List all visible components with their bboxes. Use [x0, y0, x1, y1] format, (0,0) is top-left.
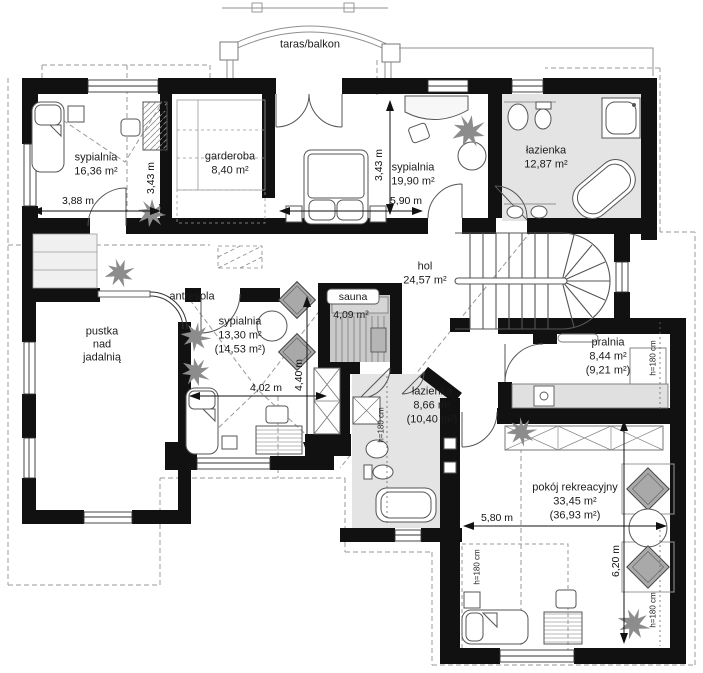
- round-table-icon: [629, 509, 667, 547]
- recreation-furniture: [462, 426, 674, 644]
- shelf-icon: [558, 334, 598, 342]
- bedroom2-furniture: [286, 96, 486, 224]
- side-table-icon: [458, 142, 486, 170]
- armchair-icon: [279, 282, 316, 319]
- door-laundry: [505, 344, 543, 382]
- door-bedroom1: [88, 188, 126, 226]
- nightstand-icon: [370, 206, 386, 222]
- sink-icon: [366, 440, 388, 458]
- door-bedroom3: [201, 294, 240, 333]
- sink-icon: [507, 206, 523, 218]
- nightstand-icon: [68, 106, 84, 122]
- bedroom3-furniture: [186, 282, 340, 454]
- chair-icon: [556, 590, 576, 608]
- wardrobe-room-shelves: [177, 100, 265, 223]
- sink-icon: [531, 206, 547, 218]
- chair-icon: [266, 406, 288, 423]
- toilet-icon: [364, 465, 372, 479]
- terrace-balcony: [220, 3, 653, 78]
- chair-icon: [121, 119, 140, 136]
- sink-icon: [508, 104, 528, 130]
- floor-plan-drawing: [0, 0, 703, 673]
- armchair-icon: [627, 546, 669, 588]
- floor-plan: taras/balkon sypialnia 16,36 m² garderob…: [0, 0, 703, 673]
- door-bedroom2: [428, 184, 462, 218]
- radiator-icon: [444, 438, 456, 449]
- mezzanine-cabinet: [33, 234, 97, 288]
- french-door-right: [309, 94, 342, 127]
- toilet-icon: [536, 102, 551, 109]
- nightstand-icon: [464, 592, 480, 608]
- armchair-icon: [279, 334, 316, 371]
- desk-icon: [544, 612, 582, 644]
- pillow-icon: [337, 200, 363, 220]
- radiator-icon: [444, 462, 456, 473]
- desk-icon: [256, 426, 302, 454]
- chair-icon: [408, 122, 430, 143]
- nightstand-icon: [222, 436, 237, 449]
- pillow-icon: [309, 200, 335, 220]
- stairs: [455, 233, 610, 329]
- round-table-icon: [257, 311, 287, 341]
- cabinet-icon: [630, 348, 666, 384]
- washing-machine-icon: [534, 386, 554, 406]
- french-door-left: [276, 94, 309, 127]
- mezzanine-rail: [98, 246, 262, 329]
- sauna-heater-icon: [371, 328, 386, 352]
- door-recreation: [462, 412, 497, 447]
- armchair-icon: [627, 468, 669, 510]
- nightstand-icon: [286, 206, 302, 222]
- bedroom1-furniture: [32, 102, 167, 172]
- desk-icon: [405, 96, 468, 120]
